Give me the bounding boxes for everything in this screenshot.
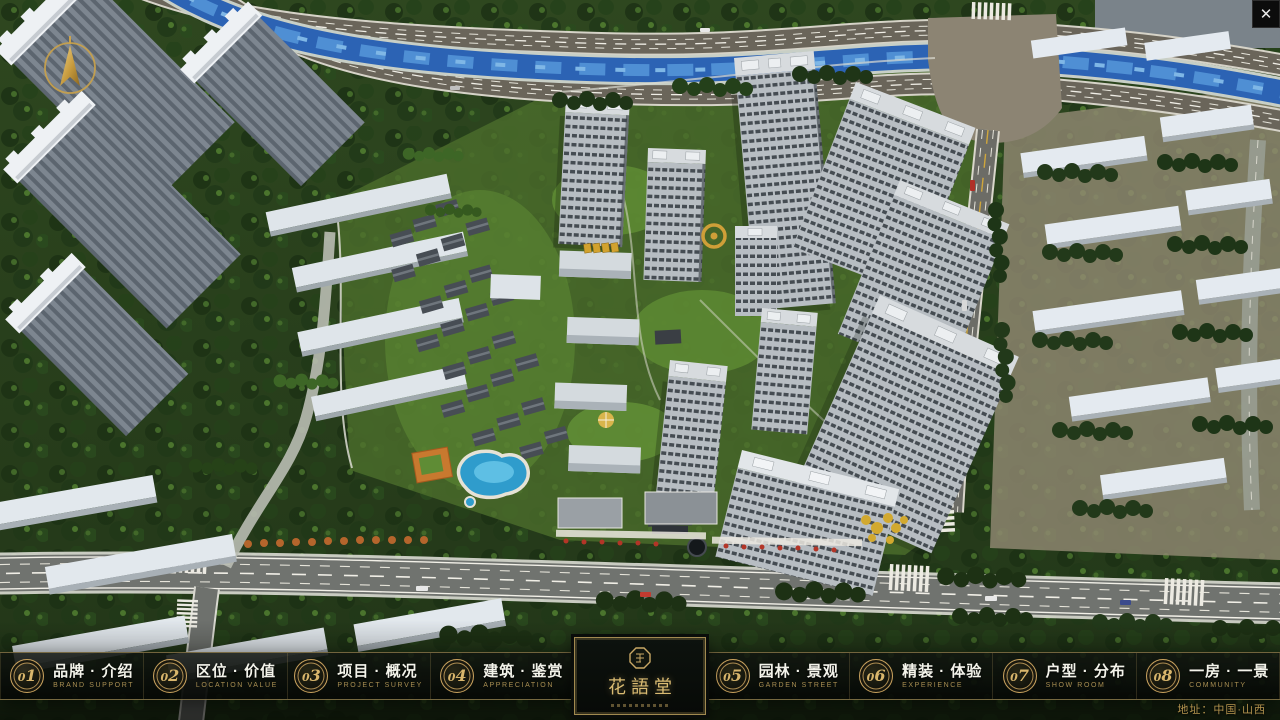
nav-number-badge: 07: [1003, 659, 1037, 693]
logo-subtext-divider: [611, 704, 669, 707]
map-render[interactable]: [0, 0, 1280, 720]
nav-item-architecture[interactable]: 04 建筑 · 鉴赏 APPRECIATION: [431, 653, 574, 699]
seal-icon: [628, 646, 652, 670]
logo-panel[interactable]: 花語堂: [574, 637, 706, 715]
nav-item-label-zh: 户型 · 分布: [1046, 664, 1126, 679]
nav-item-floorplan-distribution[interactable]: 07 户型 · 分布 SHOW ROOM: [993, 653, 1137, 699]
nav-item-interior-experience[interactable]: 06 精装 · 体验 EXPERIENCE: [850, 653, 994, 699]
nav-item-label-en: APPRECIATION: [483, 682, 554, 689]
nav-item-project-overview[interactable]: 03 项目 · 概况 PROJECT SURVEY: [288, 653, 431, 699]
address-text: 地址：中国·山西: [1177, 701, 1266, 717]
nav-item-label-zh: 精装 · 体验: [902, 664, 982, 679]
presentation-window: ✕ 01 品牌 · 介绍 BRAND SUPPORT 02 区位 · 价值 LO…: [0, 0, 1280, 720]
nav-item-label-en: SHOW ROOM: [1046, 682, 1106, 689]
compass-icon: [38, 32, 102, 100]
nav-item-label-zh: 项目 · 概况: [337, 664, 417, 679]
nav-item-room-view[interactable]: 08 一房 · 一景 COMMUNITY: [1137, 653, 1280, 699]
nav-item-label-en: GARDEN STREET: [759, 682, 839, 689]
nav-number-badge: 04: [440, 659, 474, 693]
nav-number-badge: 05: [716, 659, 750, 693]
nav-item-label-zh: 区位 · 价值: [196, 664, 276, 679]
nav-item-brand-intro[interactable]: 01 品牌 · 介绍 BRAND SUPPORT: [0, 653, 144, 699]
logo-title: 花語堂: [603, 673, 677, 699]
nav-item-label-zh: 品牌 · 介绍: [53, 664, 133, 679]
nav-item-label-zh: 一房 · 一景: [1189, 664, 1269, 679]
nav-item-label-en: BRAND SUPPORT: [53, 682, 134, 689]
nav-number-badge: 08: [1146, 659, 1180, 693]
nav-item-location-value[interactable]: 02 区位 · 价值 LOCATION VALUE: [144, 653, 287, 699]
nav-group-left: 01 品牌 · 介绍 BRAND SUPPORT 02 区位 · 价值 LOCA…: [0, 653, 574, 699]
nav-number-badge: 06: [859, 659, 893, 693]
nav-number-badge: 01: [10, 659, 44, 693]
nav-item-label-zh: 园林 · 景观: [759, 664, 839, 679]
nav-item-label-zh: 建筑 · 鉴赏: [483, 664, 563, 679]
nav-item-label-en: EXPERIENCE: [902, 682, 963, 689]
nav-item-label-en: LOCATION VALUE: [196, 682, 278, 689]
nav-item-landscape[interactable]: 05 园林 · 景观 GARDEN STREET: [706, 653, 850, 699]
close-button[interactable]: ✕: [1252, 0, 1280, 28]
close-icon: ✕: [1260, 5, 1273, 23]
nav-number-badge: 02: [153, 659, 187, 693]
nav-number-badge: 03: [294, 659, 328, 693]
nav-item-label-en: PROJECT SURVEY: [337, 682, 423, 689]
nav-group-right: 05 园林 · 景观 GARDEN STREET 06 精装 · 体验 EXPE…: [706, 653, 1280, 699]
bottom-nav: 01 品牌 · 介绍 BRAND SUPPORT 02 区位 · 价值 LOCA…: [0, 652, 1280, 700]
nav-item-label-en: COMMUNITY: [1189, 682, 1247, 689]
